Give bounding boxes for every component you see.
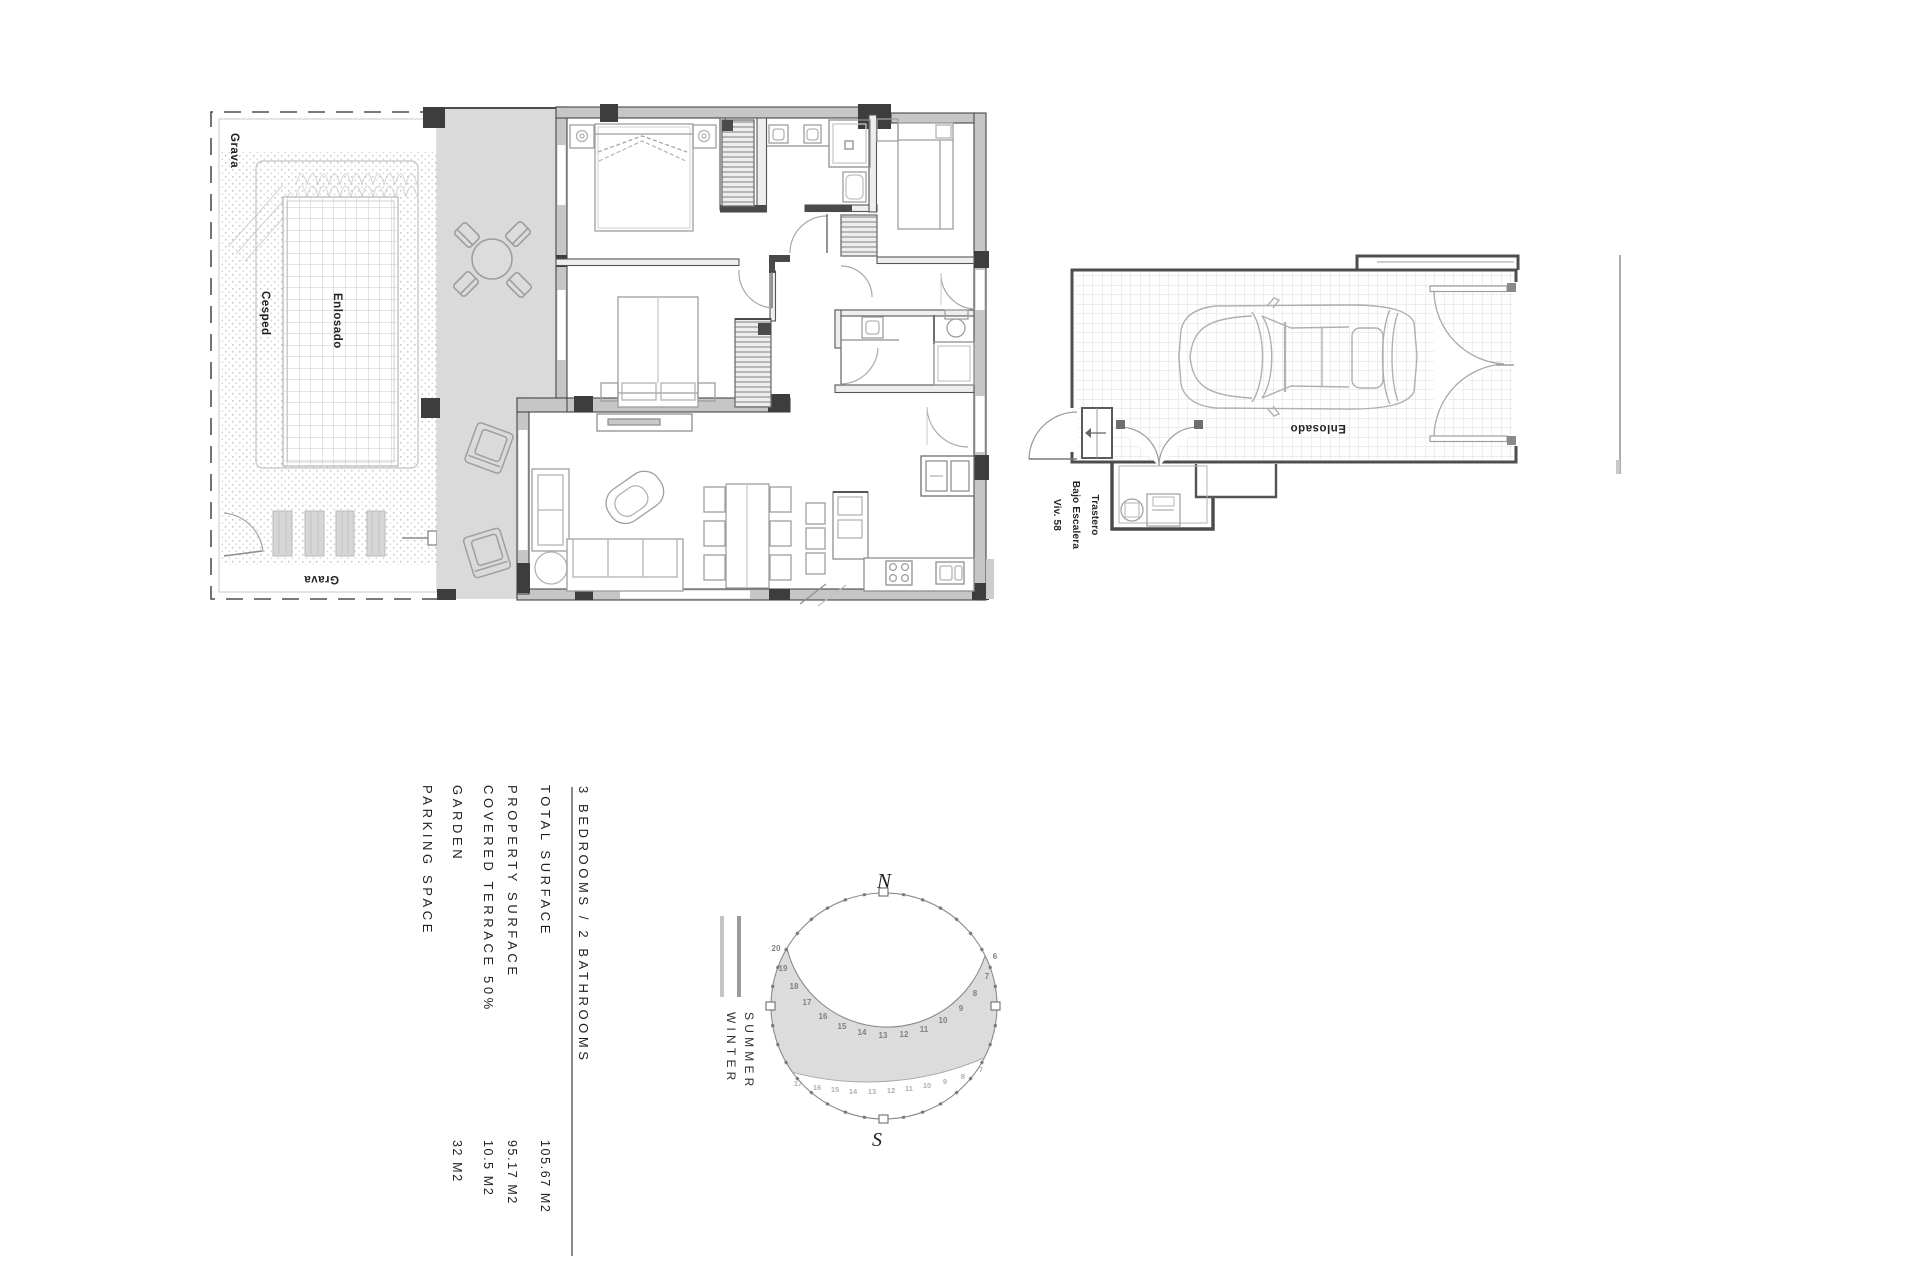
svg-text:Enlosado: Enlosado xyxy=(1290,422,1346,434)
svg-text:15: 15 xyxy=(831,1085,839,1094)
svg-text:S: S xyxy=(872,1129,882,1151)
svg-text:SUMMER: SUMMER xyxy=(742,1012,756,1091)
svg-text:13: 13 xyxy=(868,1087,876,1096)
svg-text:Bajo Escalera: Bajo Escalera xyxy=(1070,481,1081,549)
svg-text:Grava: Grava xyxy=(304,573,339,585)
svg-text:Grava: Grava xyxy=(228,133,240,168)
svg-text:12: 12 xyxy=(887,1086,895,1095)
svg-text:7: 7 xyxy=(985,972,990,981)
svg-text:32 M2: 32 M2 xyxy=(450,1140,464,1183)
svg-text:105.67 M2: 105.67 M2 xyxy=(538,1140,552,1213)
svg-text:8: 8 xyxy=(973,989,978,998)
svg-text:15: 15 xyxy=(838,1022,847,1031)
svg-text:Enlosado: Enlosado xyxy=(331,293,343,349)
svg-text:6: 6 xyxy=(993,952,998,961)
svg-text:WINTER: WINTER xyxy=(724,1012,738,1085)
svg-text:10.5 M2: 10.5 M2 xyxy=(481,1140,495,1196)
svg-text:TOTAL SURFACE: TOTAL SURFACE xyxy=(538,785,553,937)
svg-text:3 BEDROOMS / 2 BATHROOMS: 3 BEDROOMS / 2 BATHROOMS xyxy=(576,786,591,1064)
svg-text:Viv. 58: Viv. 58 xyxy=(1051,499,1062,531)
svg-text:20: 20 xyxy=(772,944,781,953)
svg-text:18: 18 xyxy=(790,982,799,991)
svg-text:16: 16 xyxy=(819,1012,828,1021)
svg-text:9: 9 xyxy=(959,1004,964,1013)
svg-text:COVERED TERRACE 50%: COVERED TERRACE 50% xyxy=(481,785,496,1013)
svg-text:19: 19 xyxy=(779,964,788,973)
svg-text:17: 17 xyxy=(803,998,812,1007)
svg-text:PROPERTY SURFACE: PROPERTY SURFACE xyxy=(505,785,520,979)
svg-text:9: 9 xyxy=(943,1077,947,1086)
svg-text:11: 11 xyxy=(905,1084,913,1093)
svg-text:14: 14 xyxy=(858,1028,867,1037)
svg-text:13: 13 xyxy=(879,1031,888,1040)
svg-text:16: 16 xyxy=(813,1083,821,1092)
svg-text:11: 11 xyxy=(920,1025,929,1034)
svg-text:10: 10 xyxy=(939,1016,948,1025)
svg-text:17: 17 xyxy=(794,1079,802,1088)
svg-text:GARDEN: GARDEN xyxy=(450,785,465,862)
svg-text:95.17 M2: 95.17 M2 xyxy=(505,1140,519,1205)
svg-text:12: 12 xyxy=(900,1030,909,1039)
svg-text:10: 10 xyxy=(923,1081,931,1090)
svg-text:8: 8 xyxy=(961,1072,965,1081)
svg-text:PARKING SPACE: PARKING SPACE xyxy=(420,785,435,936)
svg-text:Cesped: Cesped xyxy=(259,291,271,336)
svg-text:7: 7 xyxy=(979,1065,983,1074)
svg-text:14: 14 xyxy=(849,1087,858,1096)
svg-text:Trastero: Trastero xyxy=(1089,494,1100,535)
